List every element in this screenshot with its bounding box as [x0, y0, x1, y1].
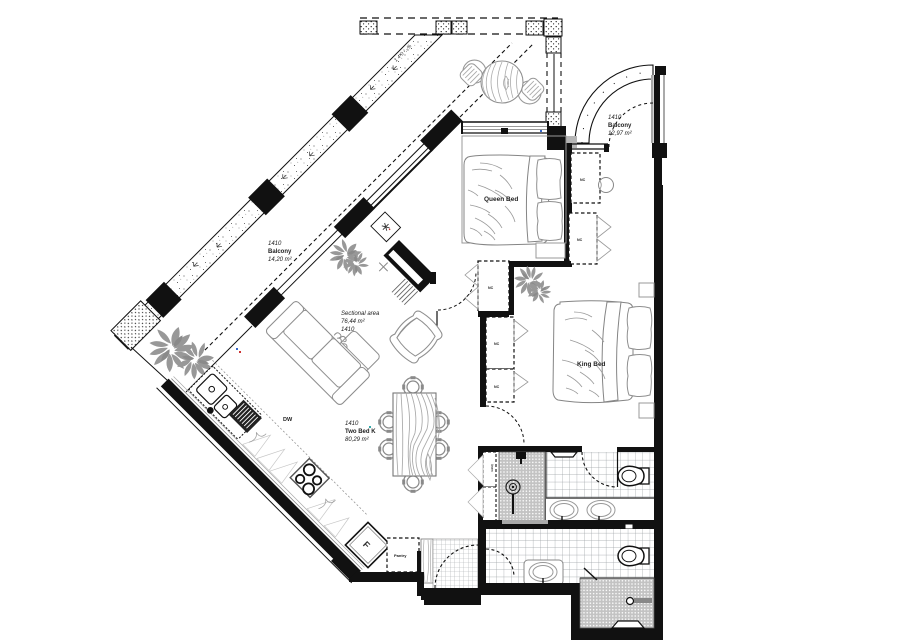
svg-text:1410: 1410 — [345, 421, 359, 427]
svg-text:NC: NC — [580, 178, 586, 182]
svg-text:NC: NC — [488, 286, 494, 290]
svg-text:King Bed: King Bed — [577, 361, 606, 368]
svg-text:DW: DW — [283, 417, 293, 423]
svg-text:1410: 1410 — [608, 115, 622, 121]
svg-text:Balcony: Balcony — [268, 249, 292, 255]
svg-text:12,97 m²: 12,97 m² — [608, 131, 633, 137]
svg-text:NC: NC — [577, 238, 583, 242]
svg-text:1410: 1410 — [341, 327, 355, 333]
svg-text:14,20 m²: 14,20 m² — [268, 257, 293, 263]
svg-text:Balcony: Balcony — [608, 123, 632, 129]
svg-text:Pantry: Pantry — [394, 553, 407, 558]
svg-text:1410: 1410 — [268, 241, 282, 247]
svg-text:NC: NC — [494, 385, 500, 389]
svg-text:linen: linen — [490, 464, 494, 472]
svg-text:Queen Bed: Queen Bed — [484, 196, 518, 203]
svg-text:Two Bed K: Two Bed K — [345, 429, 376, 435]
svg-text:Sectional area: Sectional area — [341, 311, 380, 317]
svg-text:NC: NC — [494, 342, 500, 346]
svg-text:76,44 m²: 76,44 m² — [341, 319, 366, 325]
svg-text:80,29 m²: 80,29 m² — [345, 437, 370, 443]
